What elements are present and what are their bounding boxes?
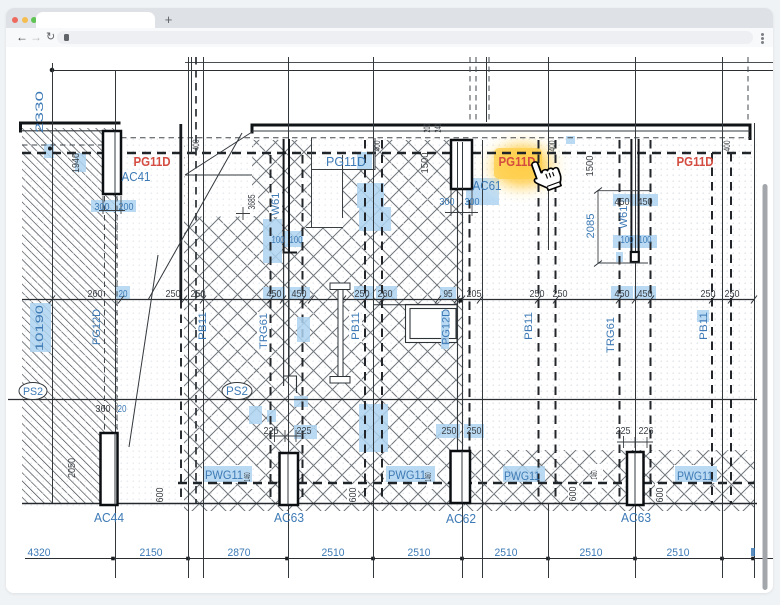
svg-text:300: 300 <box>465 196 480 208</box>
svg-text:2050: 2050 <box>67 458 78 478</box>
svg-text:300: 300 <box>95 201 110 213</box>
svg-text:AC63: AC63 <box>274 510 304 525</box>
svg-text:W61: W61 <box>270 193 282 216</box>
svg-text:600: 600 <box>655 487 666 502</box>
svg-text:226: 226 <box>639 425 654 437</box>
svg-text:450: 450 <box>638 288 653 300</box>
svg-text:AC41: AC41 <box>122 169 151 184</box>
svg-text:1940: 1940 <box>71 153 82 173</box>
svg-text:2510: 2510 <box>495 547 518 559</box>
svg-text:2870: 2870 <box>228 547 251 559</box>
svg-text:2510: 2510 <box>667 547 690 559</box>
svg-text:300: 300 <box>440 196 455 208</box>
svg-text:250: 250 <box>530 288 545 300</box>
svg-text:260: 260 <box>88 288 103 300</box>
svg-text:250: 250 <box>442 425 457 437</box>
svg-text:400: 400 <box>372 141 383 152</box>
svg-text:PB11: PB11 <box>197 312 209 340</box>
svg-text:225: 225 <box>616 425 631 437</box>
svg-text:250: 250 <box>191 288 206 300</box>
svg-text:PG11D: PG11D <box>134 155 171 169</box>
svg-text:600: 600 <box>568 486 579 501</box>
svg-text:250: 250 <box>725 288 740 300</box>
svg-text:200: 200 <box>422 124 433 133</box>
svg-text:1460: 1460 <box>423 472 433 481</box>
svg-text:2510: 2510 <box>322 547 345 559</box>
svg-text:10190: 10190 <box>34 305 46 351</box>
svg-text:95: 95 <box>444 288 453 300</box>
svg-text:PG11D: PG11D <box>499 155 536 169</box>
svg-text:450: 450 <box>292 288 307 300</box>
svg-text:1460: 1460 <box>242 472 252 481</box>
svg-text:W61: W61 <box>618 206 630 229</box>
svg-text:4320: 4320 <box>28 547 51 559</box>
svg-text:600: 600 <box>155 487 166 502</box>
svg-text:200: 200 <box>119 201 134 213</box>
svg-text:400: 400 <box>191 140 202 151</box>
svg-text:PG11D: PG11D <box>326 155 366 169</box>
svg-text:225: 225 <box>297 425 312 437</box>
svg-text:250: 250 <box>467 425 482 437</box>
svg-text:450: 450 <box>615 196 630 208</box>
svg-text:3685: 3685 <box>247 194 258 209</box>
svg-text:100: 100 <box>639 235 652 246</box>
svg-text:PB11: PB11 <box>698 312 710 340</box>
svg-text:100: 100 <box>272 235 285 246</box>
svg-text:PWG11: PWG11 <box>205 470 243 482</box>
svg-text:250: 250 <box>166 288 181 300</box>
svg-text:TRG61: TRG61 <box>258 313 270 349</box>
svg-text:PS2: PS2 <box>226 386 248 398</box>
svg-text:2085: 2085 <box>585 214 597 239</box>
svg-text:600: 600 <box>348 487 359 502</box>
svg-text:PWG11: PWG11 <box>677 471 713 483</box>
svg-text:205: 205 <box>467 288 482 300</box>
svg-text:AC63: AC63 <box>621 510 651 525</box>
svg-text:240: 240 <box>433 124 444 133</box>
svg-text:2510: 2510 <box>580 547 603 559</box>
svg-text:100: 100 <box>290 235 303 246</box>
svg-text:400: 400 <box>547 141 558 152</box>
svg-text:250: 250 <box>701 288 716 300</box>
svg-text:100: 100 <box>621 235 634 246</box>
svg-text:450: 450 <box>615 288 630 300</box>
svg-text:1500: 1500 <box>420 152 431 173</box>
svg-text:PWG11: PWG11 <box>504 471 540 483</box>
svg-text:PG11D: PG11D <box>677 155 714 169</box>
svg-text:2330: 2330 <box>34 91 46 133</box>
svg-text:PS2: PS2 <box>23 386 43 398</box>
svg-text:AC44: AC44 <box>94 510 124 525</box>
svg-text:20: 20 <box>119 288 128 300</box>
svg-text:250: 250 <box>553 288 568 300</box>
svg-text:AC62: AC62 <box>446 511 476 526</box>
svg-text:360: 360 <box>96 403 111 415</box>
svg-text:2150: 2150 <box>140 547 163 559</box>
svg-text:PB11: PB11 <box>523 312 535 340</box>
svg-text:PG12D: PG12D <box>441 309 453 345</box>
svg-text:PB11: PB11 <box>350 312 362 340</box>
svg-text:450: 450 <box>638 196 653 208</box>
svg-text:260: 260 <box>378 288 393 300</box>
svg-text:PG12D: PG12D <box>91 309 103 345</box>
svg-text:2510: 2510 <box>408 547 431 559</box>
svg-text:450: 450 <box>267 288 282 300</box>
svg-text:20: 20 <box>118 403 127 415</box>
svg-text:AC61: AC61 <box>473 178 502 193</box>
svg-text:250: 250 <box>355 288 370 300</box>
svg-text:400: 400 <box>722 141 733 152</box>
svg-text:1500: 1500 <box>585 155 596 176</box>
svg-text:225: 225 <box>264 425 279 437</box>
svg-text:1460: 1460 <box>589 470 599 479</box>
svg-text:PWG11: PWG11 <box>388 470 426 482</box>
svg-text:TRG61: TRG61 <box>605 317 617 353</box>
